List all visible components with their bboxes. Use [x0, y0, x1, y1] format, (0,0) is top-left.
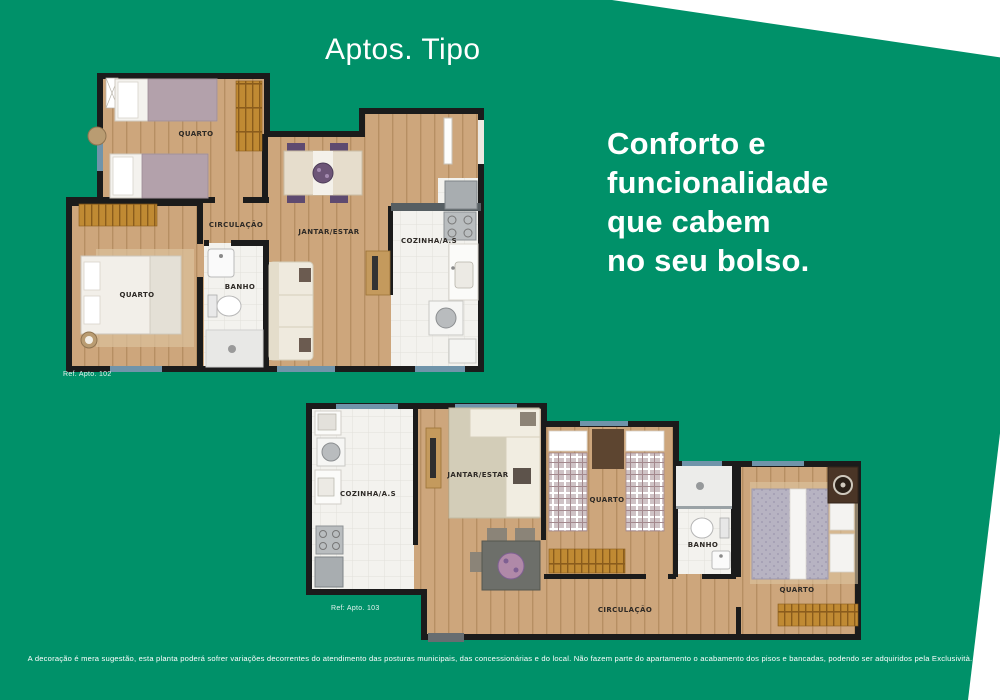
toilet — [691, 518, 713, 538]
toilet — [217, 296, 241, 316]
stove — [316, 526, 343, 554]
room-label-quarto-bottom-102: QUARTO — [119, 291, 154, 299]
room-label-circulacao-102: CIRCULAÇÃO — [209, 220, 263, 229]
room-label-jantar-103: JANTAR/ESTAR — [446, 471, 508, 479]
ref-label-apto-102: Ref. Apto. 102 — [63, 371, 112, 378]
laundry-tank — [449, 339, 476, 363]
room-label-quarto-right-103: QUARTO — [779, 586, 814, 594]
headline: Conforto e funcionalidade que cabem no s… — [607, 124, 829, 280]
room-label-quarto-top-102: QUARTO — [178, 130, 213, 138]
headline-line: funcionalidade — [607, 163, 829, 202]
headline-line: no seu bolso. — [607, 241, 829, 280]
sink-counter — [315, 411, 341, 435]
room-label-circulacao-103: CIRCULAÇÃO — [598, 605, 652, 614]
wardrobe-102-bottom — [79, 204, 157, 226]
brochure-page: Aptos. Tipo Conforto e funcionalidade qu… — [0, 0, 1000, 700]
room-label-jantar-102: JANTAR/ESTAR — [297, 228, 359, 236]
room-label-banho-103: BANHO — [688, 541, 718, 549]
stove — [444, 212, 476, 240]
floorplan-apto-103: COZINHA/A.S — [300, 398, 865, 646]
washer — [317, 438, 345, 466]
twin-bed-1 — [549, 431, 587, 531]
room-label-quarto-middle-103: QUARTO — [589, 496, 624, 504]
entry-step — [428, 633, 464, 642]
tv-rack-102 — [366, 251, 390, 295]
page-title: Aptos. Tipo — [325, 33, 481, 67]
brown-rug — [592, 429, 624, 469]
sofa-102 — [269, 262, 313, 360]
wardrobe-102-top — [236, 81, 262, 151]
dresser — [828, 467, 858, 503]
disclaimer-text: A decoração é mera sugestão, esta planta… — [0, 654, 1000, 663]
round-rug — [88, 127, 106, 145]
flower-centerpiece — [313, 163, 333, 183]
headline-line: que cabem — [607, 202, 829, 241]
washer — [429, 301, 463, 335]
twin-bed-1 — [115, 79, 217, 121]
fridge — [315, 557, 343, 587]
headline-line: Conforto e — [607, 124, 829, 163]
twin-bed-2 — [110, 154, 208, 198]
twin-bed-2 — [626, 431, 664, 531]
fridge — [445, 181, 477, 209]
dining-table-102 — [284, 143, 362, 203]
flower-centerpiece — [498, 553, 524, 579]
wardrobe-103-middle — [549, 549, 625, 573]
shower-partition — [676, 506, 732, 509]
sink — [208, 249, 234, 277]
tv-rack-103 — [426, 428, 441, 488]
wardrobe-103-right — [778, 604, 858, 626]
floorplan-apto-102: QUARTO QUARTO — [60, 70, 490, 380]
ref-label-apto-103: Ref: Apto. 103 — [331, 605, 380, 612]
room-label-banho-102: BANHO — [225, 283, 255, 291]
room-label-cozinha-103: COZINHA/A.S — [340, 490, 396, 498]
sink — [712, 551, 730, 569]
counter-sink — [449, 244, 478, 300]
room-label-cozinha-102: COZINHA/A.S — [401, 237, 457, 245]
